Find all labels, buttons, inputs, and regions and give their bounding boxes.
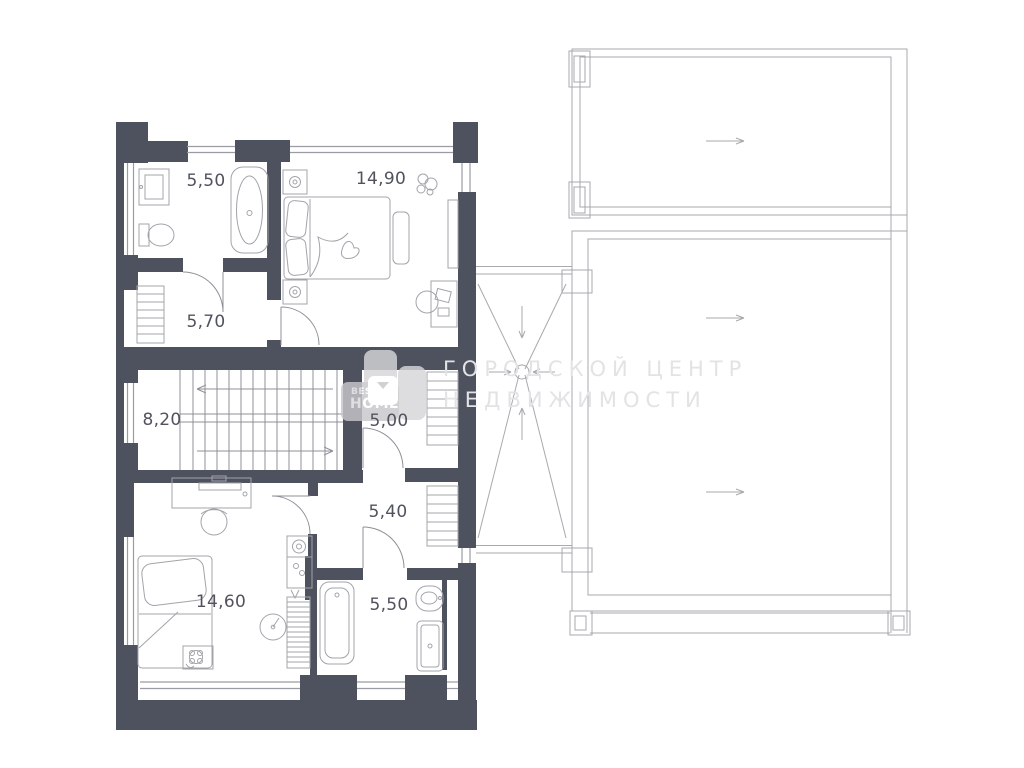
plant-icon — [417, 174, 437, 195]
nightstand-icon — [283, 280, 307, 304]
roof-plan — [562, 49, 910, 635]
logo-house-icon — [368, 376, 398, 405]
floor-plan-drawing — [0, 0, 1024, 768]
sink-icon — [139, 169, 169, 205]
chair-icon — [416, 291, 438, 313]
nightstand-icon — [283, 170, 307, 194]
room-label-bathroom-upper: 5,50 — [186, 171, 225, 191]
bedroom-lower-furniture — [138, 476, 286, 669]
bench-icon — [393, 212, 409, 264]
room-label-bathroom-lower: 5,50 — [369, 595, 408, 615]
room-label-corridor-upper: 5,00 — [369, 411, 408, 431]
room-label-hallway: 5,70 — [186, 312, 225, 332]
flower-icon — [190, 651, 203, 664]
floor-plan-page: ГОРОДСКОЙ ЦЕНТР НЕДВИЖИМОСТИ BEST HOMES … — [0, 0, 1024, 768]
dog-sketch — [341, 241, 359, 258]
logo-roof-triangle — [377, 382, 389, 389]
staircase — [180, 370, 343, 470]
room-label-bedroom-upper: 14,90 — [356, 169, 406, 189]
bed-icon — [284, 197, 390, 279]
watermark-line1: ГОРОДСКОЙ ЦЕНТР — [443, 357, 747, 381]
room-label-bedroom-lower: 14,60 — [196, 592, 246, 612]
desk-icon — [431, 281, 457, 327]
roof-terrace-upper — [572, 49, 907, 215]
room-label-stair-hall: 8,20 — [142, 410, 181, 430]
watermark-line2: НЕДВИЖИМОСТИ — [443, 388, 707, 412]
chair-icon — [201, 509, 227, 535]
wardrobes — [137, 200, 458, 668]
roof-terrace-lower — [572, 231, 907, 611]
bedroom-upper-furniture — [283, 170, 457, 327]
room-label-corridor-lower: 5,40 — [368, 502, 407, 522]
